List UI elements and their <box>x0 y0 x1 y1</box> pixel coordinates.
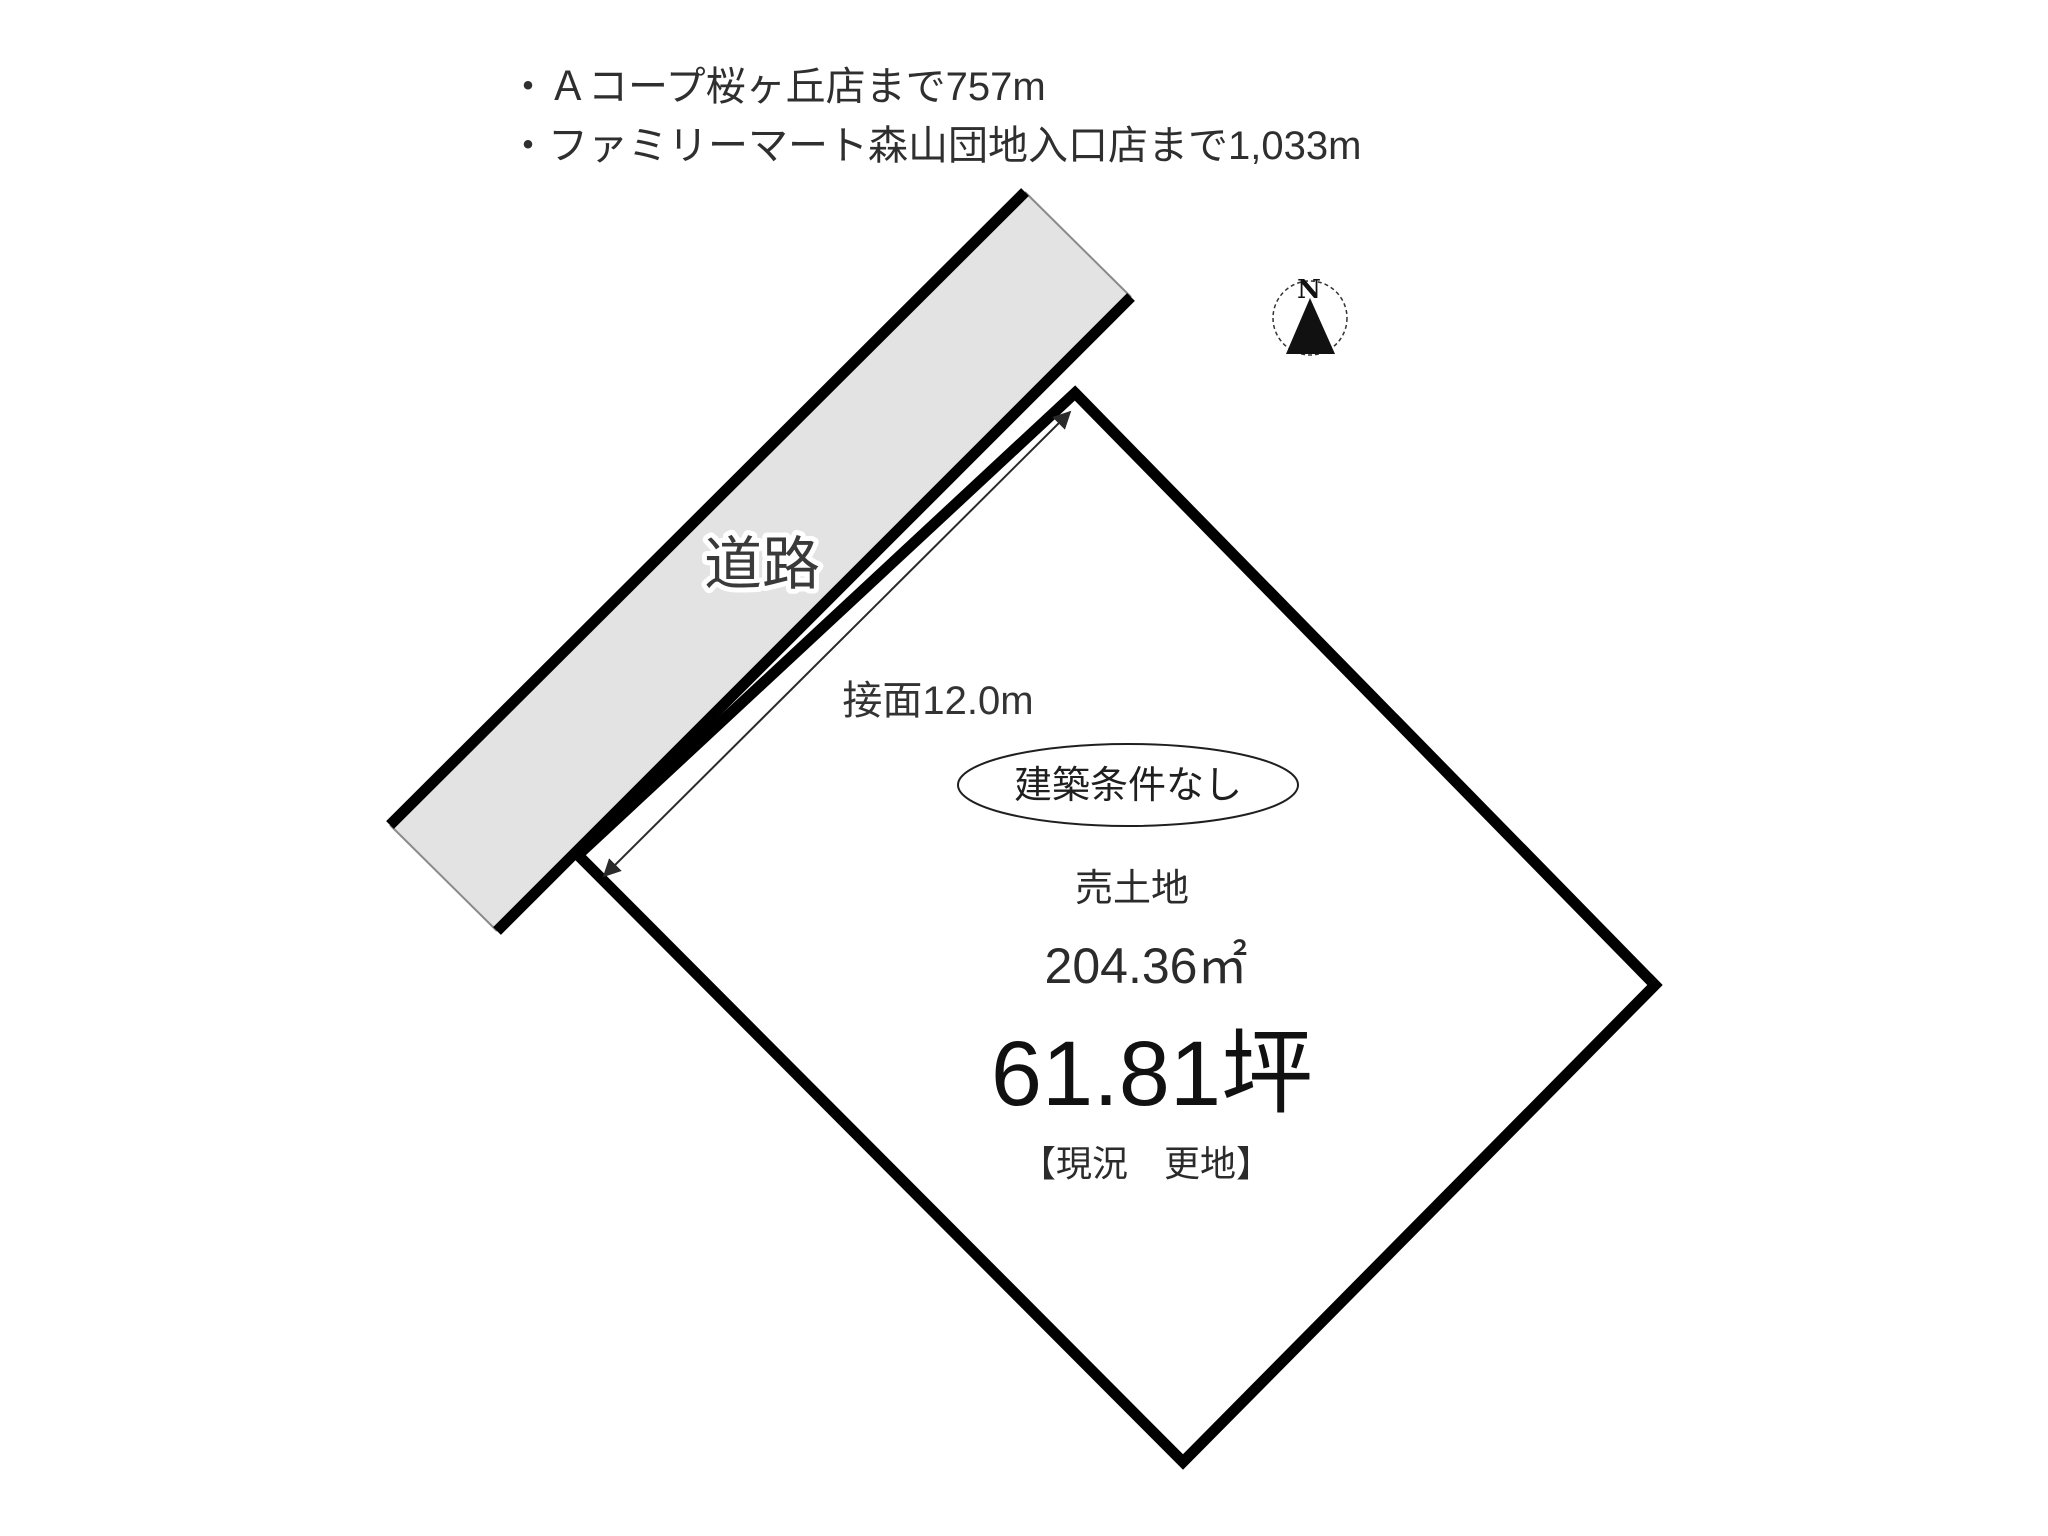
parcel-status-label: 【現況 更地】 <box>1020 1143 1272 1184</box>
parcel-area-m2: 204.36㎡ <box>1045 938 1248 994</box>
road-label: 道路 <box>704 532 820 597</box>
compass: N <box>1273 275 1347 355</box>
diagram-canvas: N ・Ａコープ桜ヶ丘店まで757m ・ファミリーマート森山団地入口店まで1,03… <box>0 0 2048 1536</box>
land-plot-diagram: N ・Ａコープ桜ヶ丘店まで757m ・ファミリーマート森山団地入口店まで1,03… <box>0 0 2048 1536</box>
condition-badge-label: 建築条件なし <box>1014 765 1242 807</box>
landmark-line-1: ・Ａコープ桜ヶ丘店まで757m <box>508 65 1046 109</box>
parcel-area-tsubo: 61.81坪 <box>991 1023 1313 1125</box>
frontage-label: 接面12.0m <box>842 679 1033 723</box>
landmark-line-2: ・ファミリーマート森山団地入口店まで1,033m <box>508 124 1361 168</box>
parcel-type-label: 売土地 <box>1075 868 1189 910</box>
